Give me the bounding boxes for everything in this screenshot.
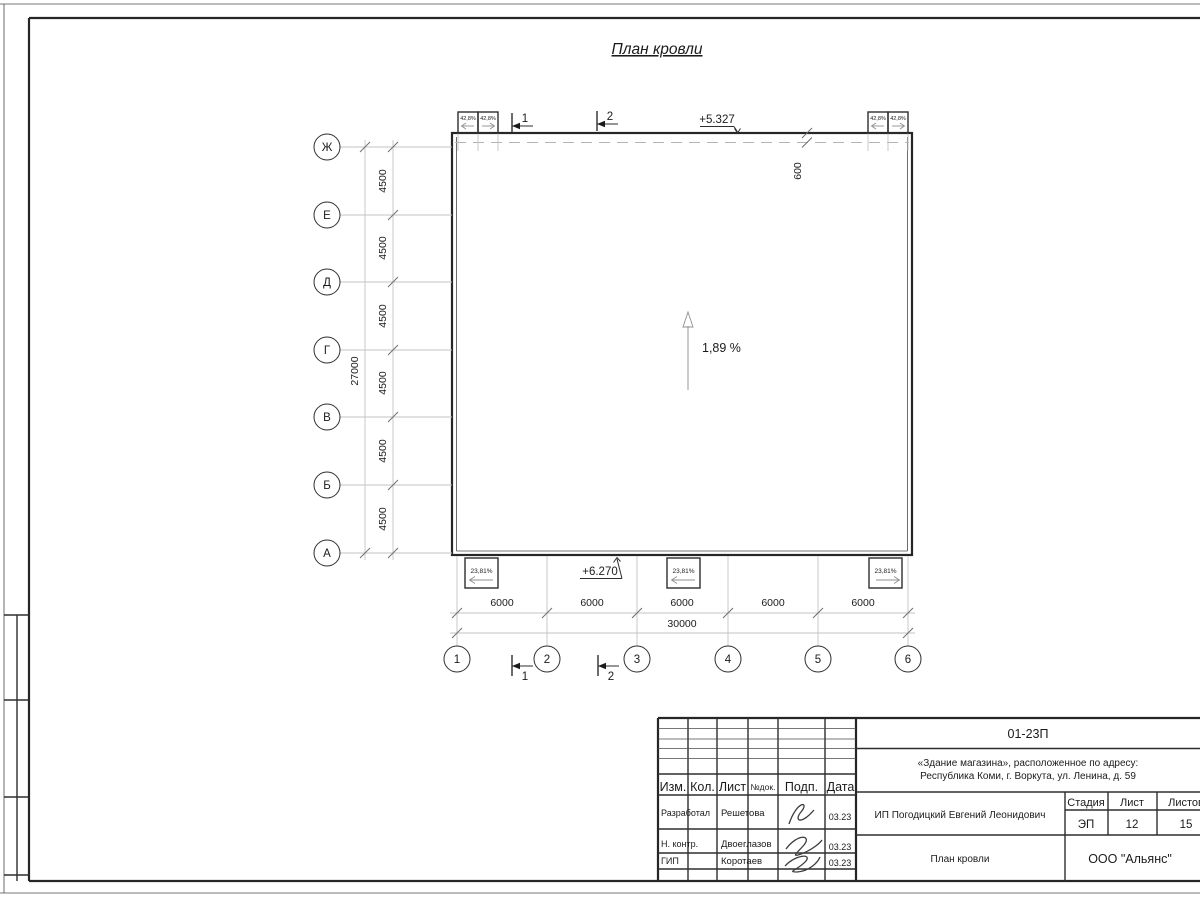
row-total-dim-label: 27000	[349, 356, 361, 385]
tb-object-line1: «Здание магазина», расположенное по адре…	[918, 758, 1139, 769]
axis-label: 2	[544, 654, 550, 666]
section-mark-2-top: 2	[597, 111, 618, 131]
signature-strokes	[785, 805, 822, 872]
tb-col-izm: Изм.	[660, 780, 687, 794]
slope-arrow-left-icon	[462, 123, 475, 129]
col-total-dim-label: 30000	[667, 618, 696, 630]
tb-stage-value: ЭП	[1078, 819, 1095, 831]
title-block: Изм. Кол. Лист №док. Подп. Дата Разработ…	[658, 718, 1200, 881]
col-dim-label: 6000	[761, 597, 785, 609]
row-dim-label: 4500	[377, 507, 389, 531]
elevation-value: +5.327	[699, 114, 735, 126]
tb-stage-label: Стадия	[1067, 797, 1105, 809]
funnel-slope-label: 42,8%	[890, 116, 906, 122]
tb-col-list: Лист	[719, 780, 746, 794]
slope-arrow-right-icon	[892, 123, 905, 129]
axis-label: 5	[815, 654, 821, 666]
tb-object-line2: Республика Коми, г. Воркута, ул. Ленина,…	[920, 770, 1136, 782]
tb-date: 03.23	[829, 812, 852, 822]
tb-client: ИП Погодицкий Евгений Леонидович	[875, 810, 1046, 821]
axis-label: Б	[323, 480, 331, 492]
roof-outline	[452, 133, 912, 555]
section-number: 1	[522, 671, 528, 683]
tb-col-data: Дата	[827, 780, 855, 794]
tb-name: Коротаев	[721, 856, 762, 867]
roof-funnel-top-left: 42,8% 42,8%	[458, 112, 498, 151]
tb-sheet-title: План кровли	[931, 854, 990, 865]
tb-col-kol: Кол.	[690, 780, 715, 794]
tb-role: Н. контр.	[661, 839, 698, 849]
canopy-slope-box-1: 23,81%	[465, 558, 498, 588]
col-dimension-chain: 6000 6000 6000 6000 6000 30000	[450, 597, 915, 638]
axis-label: Д	[323, 277, 331, 289]
section-arrow-icon	[512, 123, 520, 129]
section-arrow-icon	[598, 663, 606, 669]
section-mark-2-bottom: 2	[598, 655, 619, 683]
axis-label: 6	[905, 654, 911, 666]
tb-sheets-value: 15	[1180, 819, 1193, 831]
tb-date: 03.23	[829, 858, 852, 868]
tb-company: ООО "Альянс"	[1088, 852, 1172, 866]
row-grid-lines	[340, 147, 452, 553]
row-axis-bubbles: Ж Е Д Г В Б А	[314, 134, 340, 566]
col-dim-label: 6000	[670, 597, 694, 609]
tb-sheet-value: 12	[1126, 819, 1139, 831]
drawing-sheet: План кровли 42,8% 42,8% 42,8% 42,8	[0, 0, 1200, 900]
funnel-slope-label: 42,8%	[460, 116, 476, 122]
canopy-slope-box-3: 23,81%	[869, 558, 902, 588]
tb-name: Двоеглазов	[721, 839, 772, 850]
section-arrow-icon	[597, 121, 605, 127]
funnel-slope-label: 42,8%	[480, 116, 496, 122]
tb-name: Решетова	[721, 808, 765, 819]
section-number: 2	[608, 671, 614, 683]
tb-sheets-label: Листов	[1168, 797, 1200, 809]
row-dim-label: 4500	[377, 169, 389, 193]
row-dim-label: 4500	[377, 439, 389, 463]
arrow-up-icon	[683, 312, 693, 327]
axis-label: Ж	[322, 142, 333, 154]
page-title: План кровли	[612, 41, 703, 58]
elevation-mark-bottom: +6.270	[580, 558, 622, 579]
slope-arrow-left-icon	[872, 123, 885, 129]
axis-label: А	[323, 548, 331, 560]
row-dim-label: 4500	[377, 236, 389, 260]
tb-doc-number: 01-23П	[1008, 727, 1049, 741]
col-dim-label: 6000	[490, 597, 514, 609]
col-axis-bubbles: 1 2 3 4 5 6	[444, 646, 921, 672]
roof-funnel-top-right: 42,8% 42,8%	[868, 112, 908, 151]
slope-arrow-right-icon	[876, 577, 900, 584]
overhang-dimension: 600	[792, 128, 812, 180]
tb-sheet-label: Лист	[1120, 797, 1144, 809]
axis-label: 4	[725, 654, 732, 666]
funnel-slope-label: 42,8%	[870, 116, 886, 122]
axis-label: Г	[324, 345, 331, 357]
row-dim-label: 4500	[377, 371, 389, 395]
tb-col-doc: №док.	[751, 782, 776, 792]
roof-slope-arrow: 1,89 %	[683, 312, 741, 390]
axis-label: Е	[323, 210, 331, 222]
row-dim-label: 4500	[377, 304, 389, 328]
tb-date: 03.23	[829, 842, 852, 852]
axis-label: 3	[634, 654, 640, 666]
axis-label: 1	[454, 654, 460, 666]
section-mark-1-bottom: 1	[512, 655, 533, 683]
left-margin-stamp	[4, 615, 29, 881]
slope-arrow-left-icon	[470, 577, 494, 584]
tb-role: ГИП	[661, 856, 679, 866]
axis-label: В	[323, 412, 331, 424]
overhang-dim-label: 600	[792, 162, 804, 180]
col-dim-label: 6000	[851, 597, 875, 609]
main-slope-label: 1,89 %	[702, 341, 741, 355]
slope-arrow-left-icon	[672, 577, 696, 584]
slope-arrow-right-icon	[482, 123, 495, 129]
section-arrow-icon	[512, 663, 520, 669]
section-mark-1-top: 1	[512, 113, 533, 133]
section-number: 2	[607, 111, 613, 123]
canopy-slope-label: 23,81%	[874, 568, 896, 575]
canopy-slope-label: 23,81%	[470, 568, 492, 575]
elevation-value: +6.270	[582, 566, 618, 578]
tb-col-podp: Подп.	[785, 780, 818, 794]
section-number: 1	[522, 113, 528, 125]
canopy-slope-box-2: 23,81%	[667, 558, 700, 588]
col-dim-label: 6000	[580, 597, 604, 609]
tb-role: Разработал	[661, 808, 710, 818]
canopy-slope-label: 23,81%	[672, 568, 694, 575]
elevation-mark-top: +5.327	[699, 114, 740, 133]
